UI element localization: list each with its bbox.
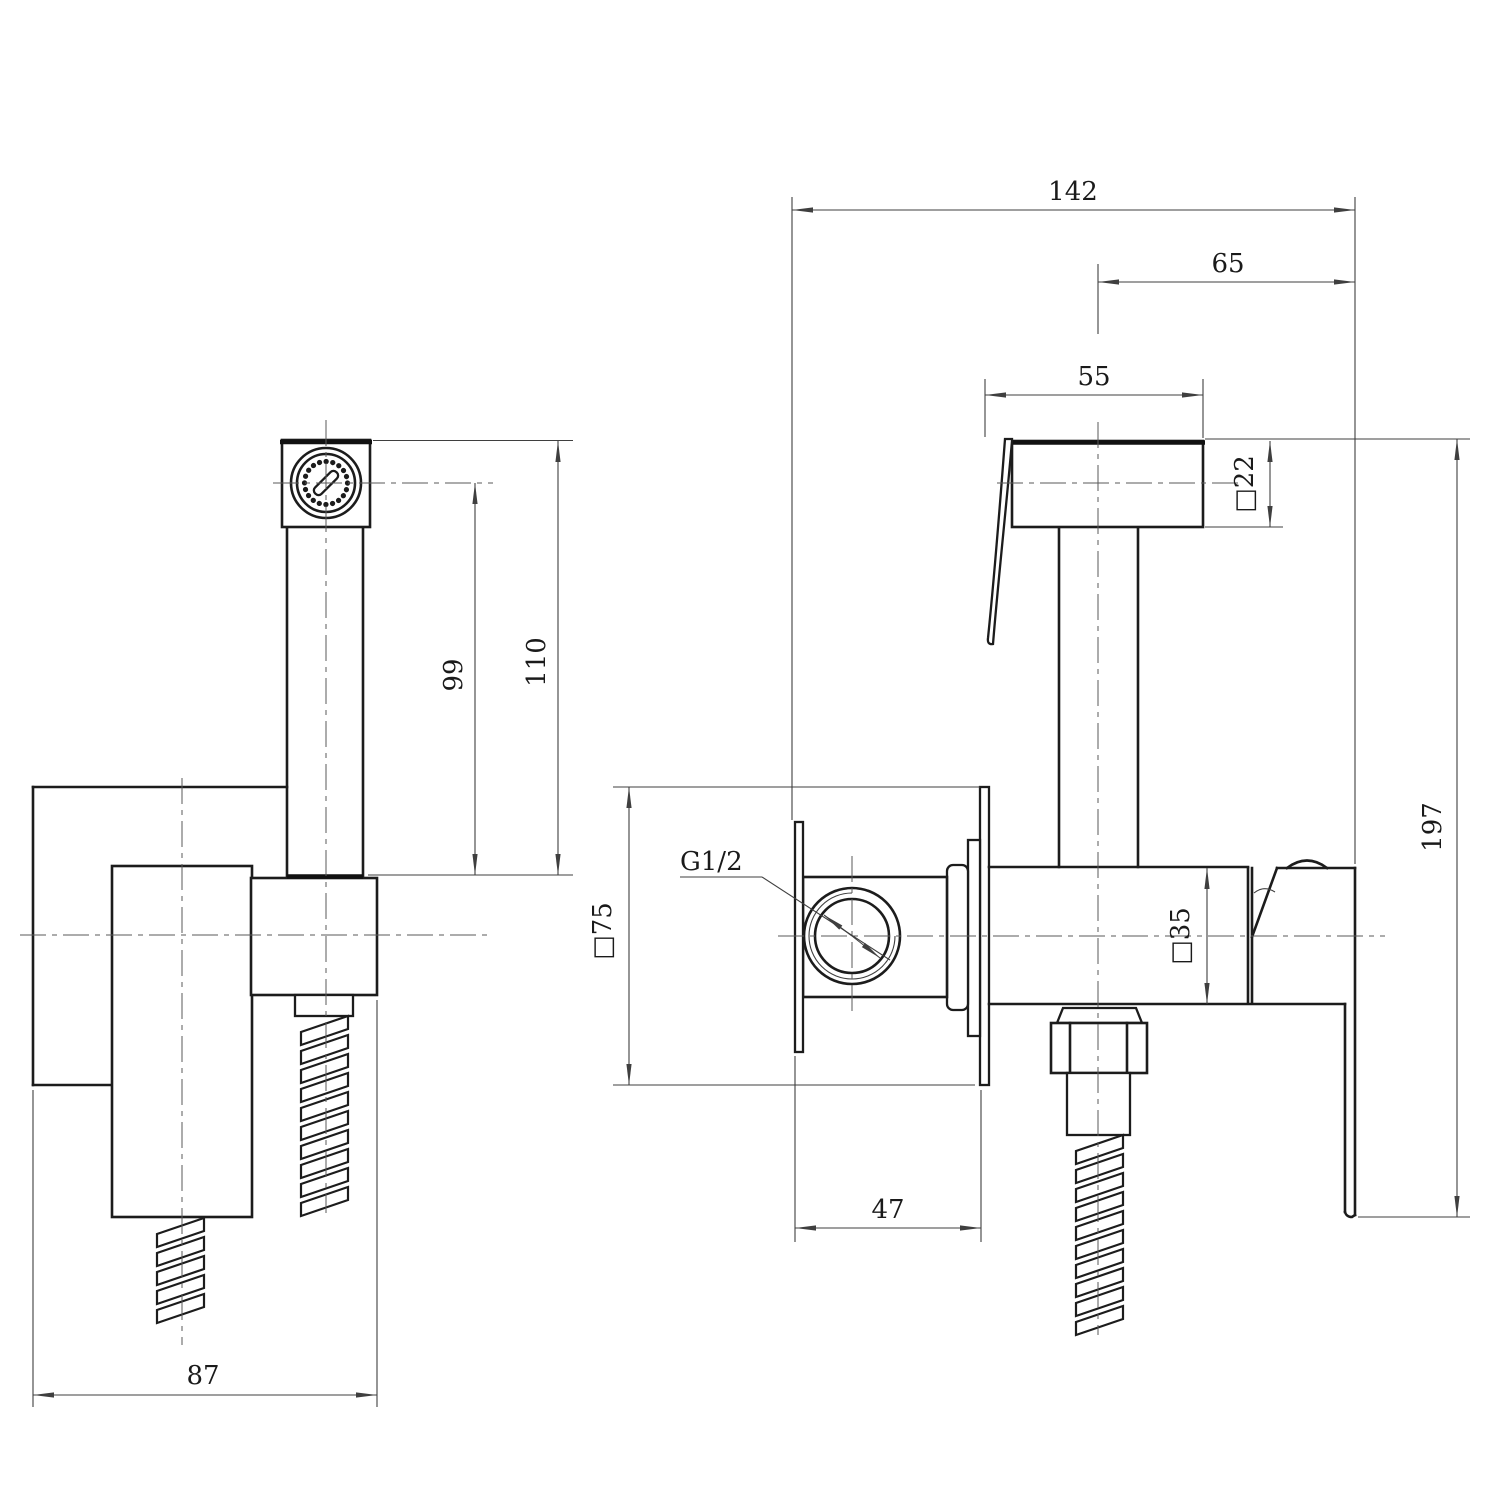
flange-step-inner: [947, 865, 968, 1010]
dim-label-g12: G1/2: [680, 847, 743, 877]
dimension-197: 197: [1358, 439, 1470, 1217]
shower-hose-front: [301, 1016, 348, 1216]
dim-label-142: 142: [1048, 177, 1098, 207]
side-view: 142 65 55 □22 □75: [588, 177, 1470, 1335]
dim-label-197: 197: [1418, 802, 1448, 852]
dim-label-87: 87: [186, 1361, 219, 1391]
front-view: 110 99 87: [20, 420, 573, 1407]
dim-label-65: 65: [1211, 249, 1244, 279]
hose-nut-side: [1051, 1008, 1147, 1135]
sprayer-trigger-lever: [988, 439, 1012, 644]
sprayer-head-side: [988, 439, 1205, 644]
mounting-plate-side: [795, 822, 803, 1052]
dim-label-55: 55: [1077, 362, 1110, 392]
shower-hose-side: [1076, 1135, 1123, 1335]
dim-label-square-22: □22: [1230, 455, 1260, 513]
dim-label-square-35: □35: [1166, 907, 1196, 965]
dim-label-110: 110: [522, 637, 552, 687]
dim-label-99: 99: [439, 658, 469, 691]
dim-label-square-75: □75: [588, 902, 618, 960]
flange-step-outer: [968, 840, 980, 1036]
dim-label-47: 47: [871, 1195, 904, 1225]
dimension-47: 47: [795, 1056, 981, 1242]
bidet-mixer-technical-drawing: 110 99 87: [0, 0, 1500, 1500]
hose-nut-front: [295, 995, 353, 1016]
dimension-65: 65: [1098, 249, 1355, 334]
dimension-55: 55: [985, 362, 1203, 438]
drawing-canvas: 110 99 87: [0, 0, 1500, 1500]
mixer-handle-side: [1252, 861, 1355, 1218]
dimension-110: 110: [368, 441, 573, 876]
hose-holder-block: [251, 878, 377, 995]
dimension-square-22: □22: [1205, 439, 1470, 527]
dimension-99: 99: [439, 483, 475, 875]
inlet-hose-front: [157, 1218, 204, 1323]
sprayer-tube-front: [287, 527, 363, 877]
